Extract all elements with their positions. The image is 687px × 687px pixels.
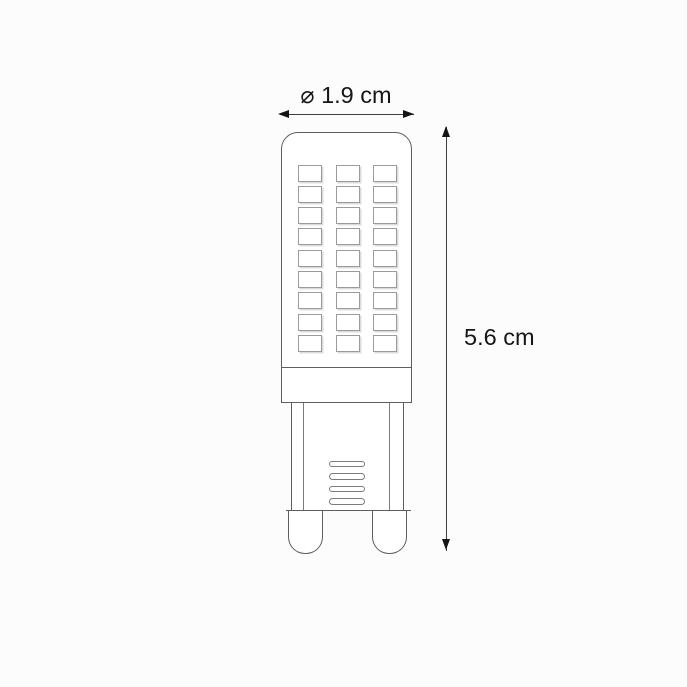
pin-wire-left [303, 403, 304, 511]
arrow-up-icon [442, 126, 450, 137]
vent-slot [329, 498, 365, 505]
arrow-down-icon [442, 539, 450, 550]
led-chip [298, 335, 322, 352]
led-chip [336, 271, 360, 288]
bulb-base [291, 403, 404, 512]
diameter-label: ⌀ 1.9 cm [270, 84, 422, 108]
pin-left [288, 511, 324, 554]
led-chip [336, 228, 360, 245]
led-chip [373, 165, 397, 182]
led-chip [298, 314, 322, 331]
led-chip [373, 335, 397, 352]
led-chip [373, 228, 397, 245]
led-chip [336, 314, 360, 331]
led-chip [373, 314, 397, 331]
led-chip [373, 292, 397, 309]
led-chip [336, 186, 360, 203]
diameter-dimension-line [280, 114, 414, 115]
led-chip [298, 207, 322, 224]
vent-slot [329, 486, 365, 493]
led-chip [298, 186, 322, 203]
led-chip [298, 250, 322, 267]
pin-right [372, 511, 408, 554]
led-chip [336, 292, 360, 309]
led-chip [373, 186, 397, 203]
led-chip [373, 207, 397, 224]
led-chip [298, 165, 322, 182]
arrow-right-icon [403, 110, 414, 118]
led-chip [336, 165, 360, 182]
led-chip [298, 292, 322, 309]
height-label: 5.6 cm [464, 326, 535, 350]
led-chip [373, 271, 397, 288]
bulb-capsule [281, 132, 412, 403]
pin-wire-right [389, 403, 390, 511]
led-chip [298, 271, 322, 288]
arrow-left-icon [278, 110, 289, 118]
led-chip [336, 207, 360, 224]
vent-slot [329, 473, 365, 480]
capsule-base-joint-line [281, 367, 412, 368]
led-chip [373, 250, 397, 267]
led-chip [298, 228, 322, 245]
led-chip [336, 250, 360, 267]
product-dimension-diagram: ⌀ 1.9 cm 5.6 cm [0, 0, 687, 687]
vent-slot [329, 461, 365, 468]
height-dimension-line [446, 127, 447, 551]
led-chip [336, 335, 360, 352]
